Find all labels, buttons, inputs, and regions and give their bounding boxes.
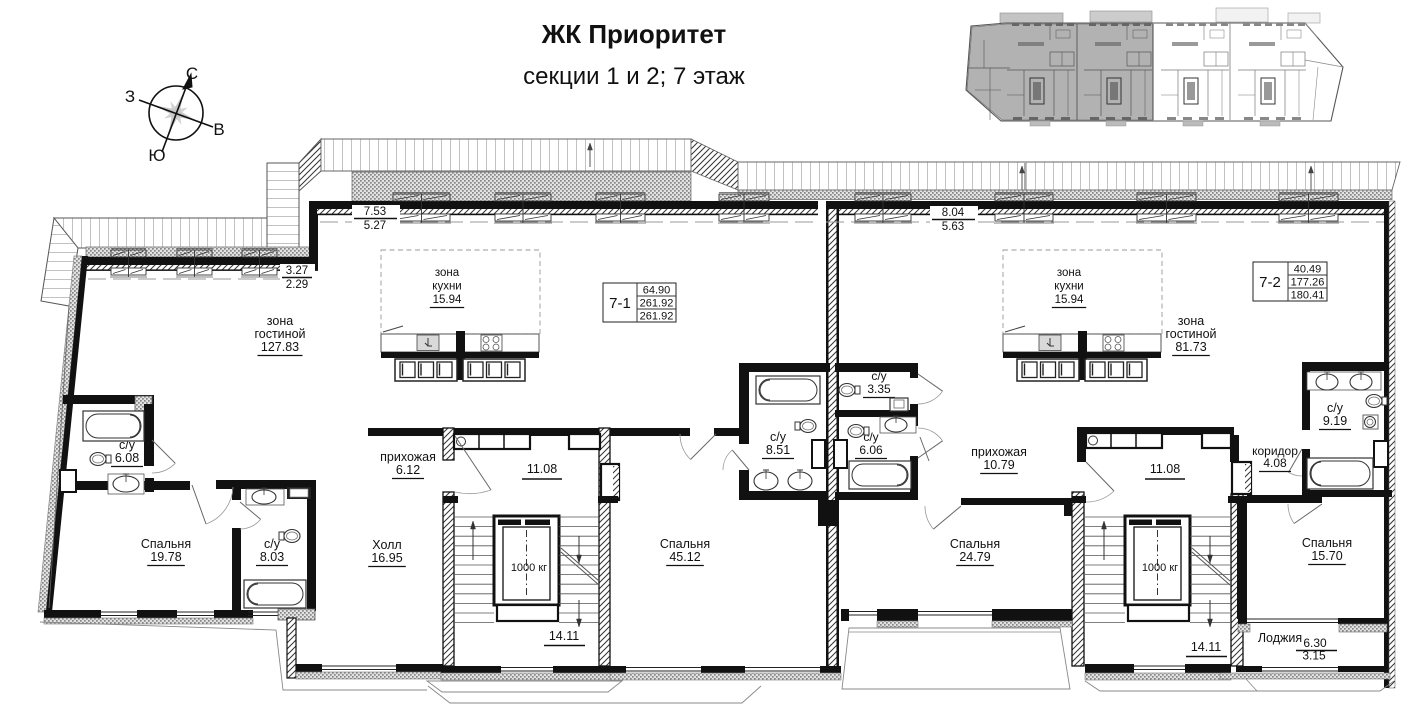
svg-text:с/у: с/у	[770, 430, 787, 444]
svg-text:5.27: 5.27	[364, 220, 386, 232]
svg-text:с/у: с/у	[1327, 401, 1344, 415]
svg-text:прихожая: прихожая	[971, 445, 1027, 459]
svg-text:4.08: 4.08	[1263, 456, 1287, 470]
svg-text:Спальня: Спальня	[660, 537, 710, 551]
svg-text:16.95: 16.95	[371, 551, 402, 565]
svg-text:11.08: 11.08	[527, 462, 557, 476]
svg-text:6.12: 6.12	[396, 463, 420, 477]
svg-text:177.26: 177.26	[1291, 277, 1325, 289]
svg-text:кухни: кухни	[432, 281, 461, 293]
svg-text:В: В	[213, 120, 224, 139]
svg-text:Спальня: Спальня	[950, 537, 1000, 551]
svg-text:З: З	[125, 87, 135, 106]
svg-text:11.08: 11.08	[1150, 462, 1180, 476]
svg-text:Спальня: Спальня	[141, 537, 191, 551]
svg-text:8.03: 8.03	[260, 550, 284, 564]
svg-text:6.06: 6.06	[859, 443, 883, 457]
svg-text:261.92: 261.92	[640, 298, 674, 310]
svg-text:Холл: Холл	[372, 538, 401, 552]
svg-text:6.08: 6.08	[115, 451, 139, 465]
svg-text:5.63: 5.63	[942, 221, 964, 233]
svg-text:64.90: 64.90	[643, 285, 671, 297]
svg-text:гостиной: гостиной	[254, 327, 305, 341]
svg-text:81.73: 81.73	[1175, 340, 1206, 354]
svg-text:3.27: 3.27	[286, 265, 308, 277]
svg-text:19.78: 19.78	[150, 550, 181, 564]
svg-text:8.04: 8.04	[942, 207, 965, 219]
svg-text:зона: зона	[435, 267, 460, 279]
svg-text:8.51: 8.51	[766, 443, 790, 457]
svg-text:9.19: 9.19	[1323, 414, 1347, 428]
svg-text:зона: зона	[1178, 314, 1204, 328]
svg-text:180.41: 180.41	[1291, 290, 1325, 302]
svg-text:ЖК Приоритет: ЖК Приоритет	[541, 19, 727, 49]
svg-text:3.35: 3.35	[867, 382, 891, 396]
svg-text:45.12: 45.12	[669, 550, 700, 564]
svg-text:261.92: 261.92	[640, 311, 674, 323]
svg-text:10.79: 10.79	[983, 458, 1014, 472]
svg-text:кухни: кухни	[1054, 281, 1083, 293]
svg-text:Лоджия: Лоджия	[1258, 631, 1302, 645]
svg-text:24.79: 24.79	[959, 550, 990, 564]
svg-text:зона: зона	[267, 314, 293, 328]
svg-text:15.70: 15.70	[1311, 549, 1342, 563]
svg-text:с/у: с/у	[264, 537, 281, 551]
svg-text:1000 кг: 1000 кг	[1142, 562, 1178, 574]
svg-text:с/у: с/у	[871, 369, 886, 383]
svg-text:40.49: 40.49	[1294, 264, 1322, 276]
svg-text:14.11: 14.11	[1191, 640, 1221, 654]
svg-text:3.15: 3.15	[1302, 649, 1326, 663]
svg-text:127.83: 127.83	[261, 340, 299, 354]
svg-text:прихожая: прихожая	[380, 450, 436, 464]
svg-text:7-1: 7-1	[609, 295, 631, 312]
svg-text:7-2: 7-2	[1259, 274, 1281, 291]
svg-text:15.94: 15.94	[433, 294, 462, 306]
svg-text:Ю: Ю	[148, 146, 165, 165]
svg-text:14.11: 14.11	[549, 629, 579, 643]
svg-text:Спальня: Спальня	[1302, 536, 1352, 550]
svg-text:15.94: 15.94	[1055, 294, 1084, 306]
svg-text:7.53: 7.53	[364, 206, 386, 218]
svg-text:секции 1 и 2; 7 этаж: секции 1 и 2; 7 этаж	[523, 63, 745, 90]
svg-text:зона: зона	[1057, 267, 1082, 279]
svg-text:1000 кг: 1000 кг	[511, 562, 547, 574]
svg-text:2.29: 2.29	[286, 279, 308, 291]
svg-text:С: С	[186, 64, 198, 83]
svg-text:гостиной: гостиной	[1165, 327, 1216, 341]
